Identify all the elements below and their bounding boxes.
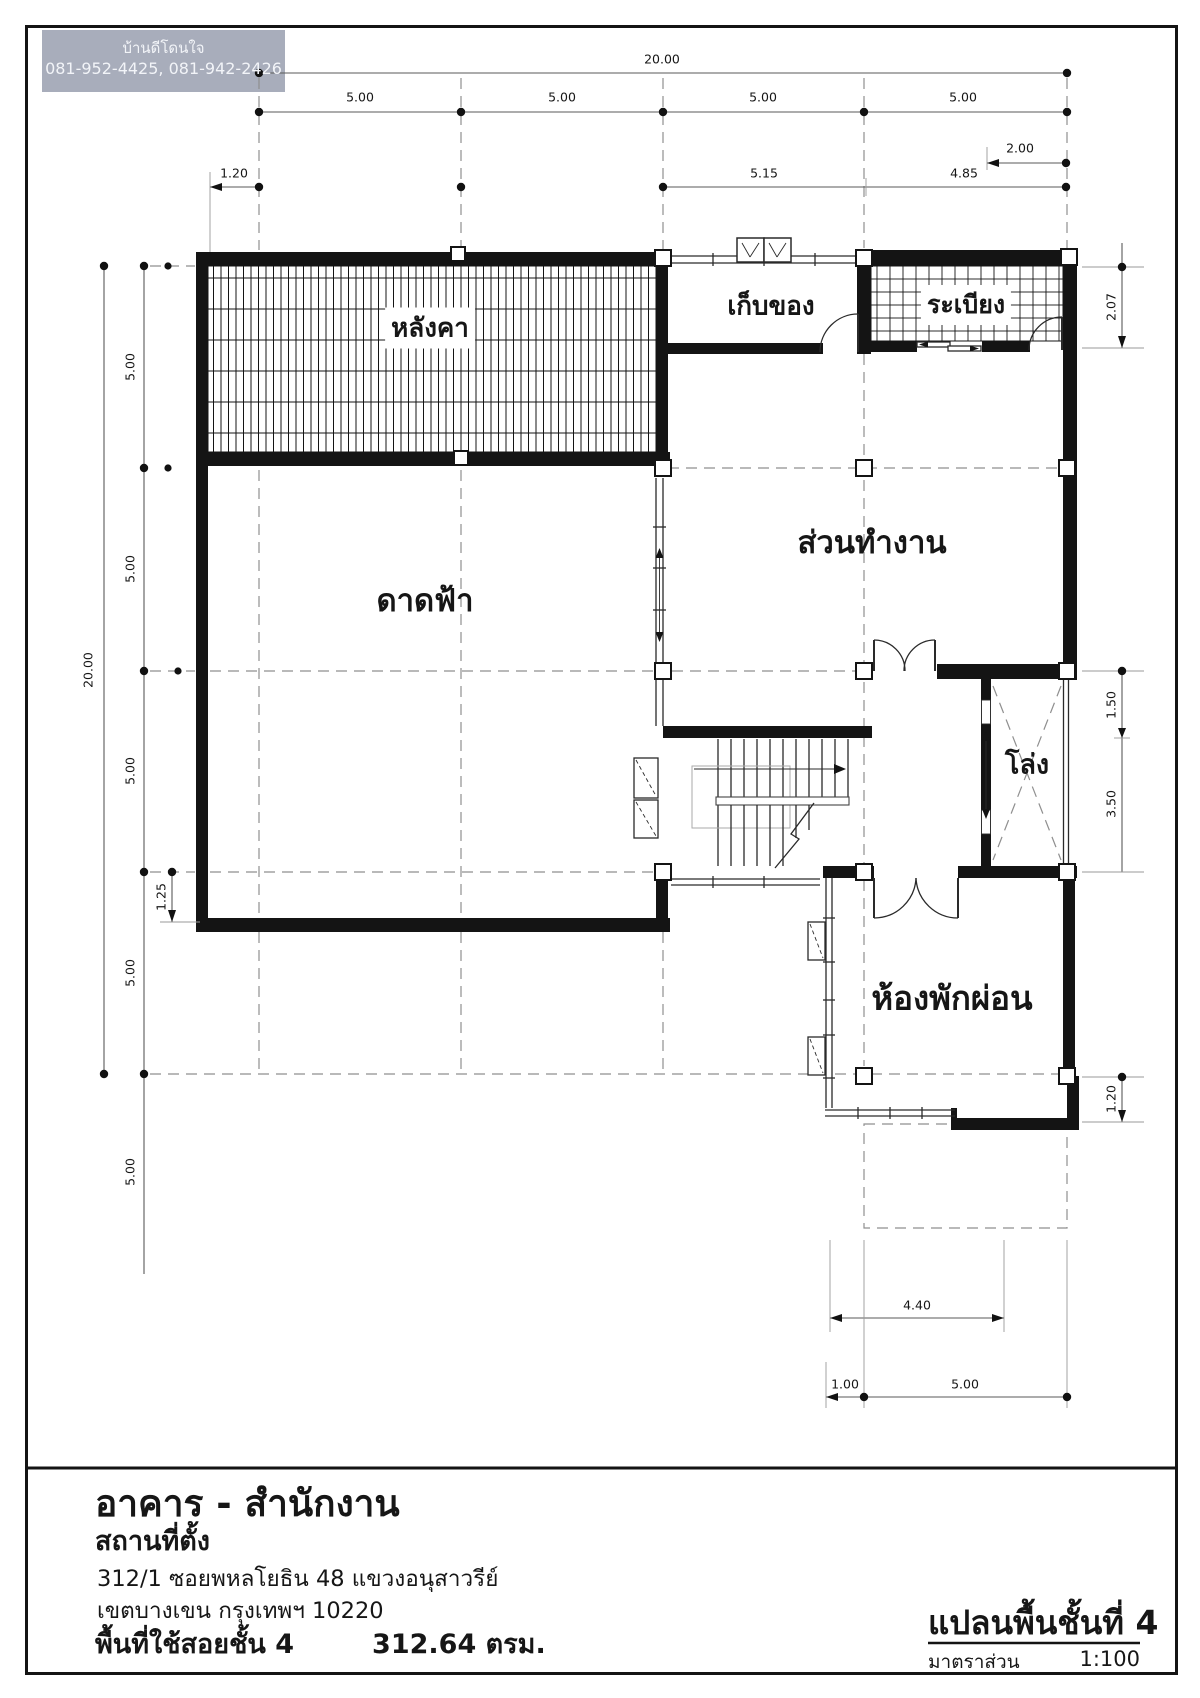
room-label-void: โล่ง (1005, 743, 1049, 786)
dim-top-total: 20.00 (644, 52, 680, 67)
dim-right-3: 3.50 (1104, 790, 1119, 818)
dim-left-total: 20.00 (81, 652, 96, 688)
dim-top-bay-1: 5.00 (346, 90, 374, 105)
floor-plan-drawing (0, 0, 1200, 1698)
address-line-1: 312/1 ซอยพหลโยธิน 48 แขวงอนุสาวรีย์ (97, 1560, 498, 1596)
room-label-lounge: ห้องพักผ่อน (871, 972, 1032, 1025)
dim-left-bay-2: 5.00 (123, 555, 138, 583)
dim-top-sub-2: 5.15 (750, 166, 778, 181)
dim-right-2: 1.50 (1104, 691, 1119, 719)
room-label-storage: เก็บของ (727, 286, 814, 327)
dim-left-offset: 1.25 (154, 883, 169, 911)
floor-plan-page: บ้านดีโดนใจ 081-952-4425, 081-942-2426 ห… (0, 0, 1200, 1698)
plan-name: แปลนพื้นชั้นที่ 4 (928, 1596, 1158, 1649)
dim-top-bay-4: 5.00 (949, 90, 977, 105)
floor-area-value: 312.64 ตรม. (372, 1622, 546, 1665)
watermark-phone: 081-952-4425, 081-942-2426 (42, 60, 285, 78)
room-label-work-area: ส่วนทำงาน (797, 517, 946, 567)
dim-bottom-1: 4.40 (903, 1298, 931, 1313)
location-label: สถานที่ตั้ง (95, 1519, 210, 1562)
dim-right-1: 2.07 (1104, 293, 1119, 321)
floor-area-label: พื้นที่ใช้สอยชั้น 4 (95, 1622, 294, 1665)
dim-bottom-2: 1.00 (831, 1377, 859, 1392)
dim-top-bay-2: 5.00 (548, 90, 576, 105)
dim-left-bay-1: 5.00 (123, 353, 138, 381)
scale-label: มาตราส่วน (928, 1647, 1020, 1677)
room-label-roof-deck: ดาดฟ้า (376, 575, 473, 625)
dim-left-bay-5: 5.00 (123, 1158, 138, 1186)
dim-top-right-offset: 2.00 (1006, 141, 1034, 156)
room-label-balcony: ระเบียง (921, 285, 1011, 325)
dim-left-bay-4: 5.00 (123, 959, 138, 987)
floor-area-spacer (294, 1622, 372, 1665)
dim-right-4: 1.20 (1104, 1085, 1119, 1113)
dim-top-bay-3: 5.00 (749, 90, 777, 105)
watermark-brand: บ้านดีโดนใจ (42, 40, 285, 57)
dim-bottom-3: 5.00 (951, 1377, 979, 1392)
dim-left-bay-3: 5.00 (123, 757, 138, 785)
dim-top-sub-1: 1.20 (220, 166, 248, 181)
roof-hatch (208, 266, 656, 452)
dim-top-sub-3: 4.85 (950, 166, 978, 181)
scale-value: 1:100 (1079, 1647, 1140, 1677)
floor-area-row: พื้นที่ใช้สอยชั้น 4 312.64 ตรม. (95, 1622, 546, 1665)
arrow-marks (656, 342, 991, 820)
room-label-roof: หลังคา (385, 308, 475, 349)
scale-row: มาตราส่วน 1:100 (928, 1647, 1140, 1677)
